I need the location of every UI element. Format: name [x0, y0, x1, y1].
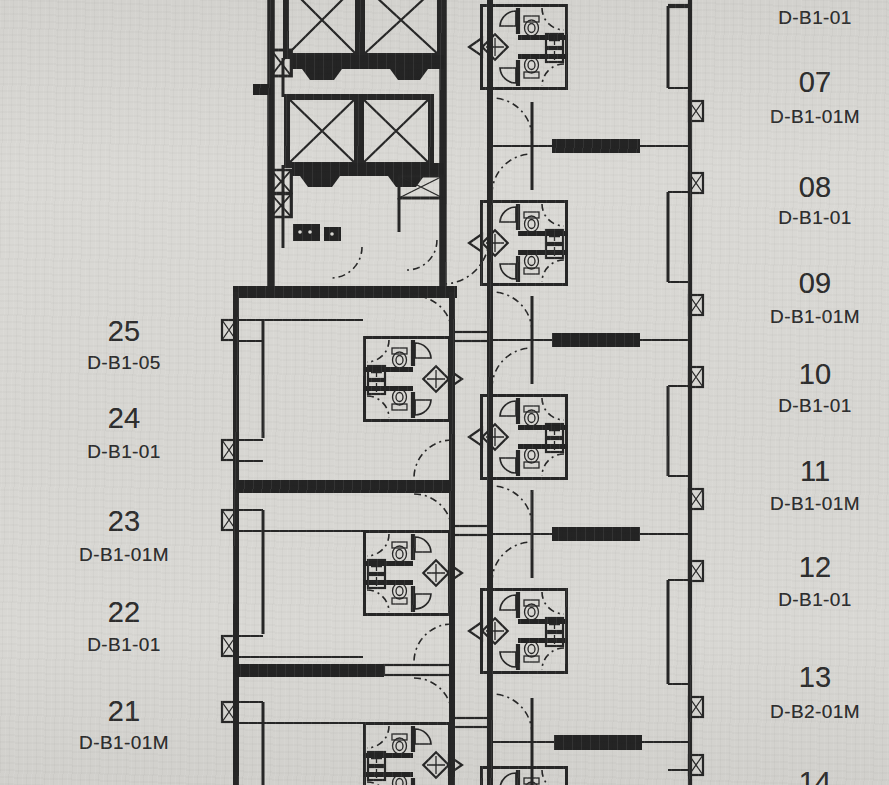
- door-arc: [414, 624, 452, 662]
- door-arc: [492, 486, 532, 526]
- wall: [292, 163, 444, 176]
- structural-wall: [554, 735, 642, 750]
- unit-type-label: D-B2-01M: [730, 702, 889, 722]
- elevator-shaft-icon: [287, 97, 431, 165]
- right-wing: [469, 0, 703, 785]
- door-arc: [492, 98, 532, 138]
- structural-wall: [236, 480, 452, 493]
- bathroom-cluster: [469, 202, 568, 285]
- unit-number: 10: [730, 359, 889, 389]
- unit-number: 08: [730, 172, 889, 202]
- wall: [292, 55, 444, 69]
- wall: [233, 286, 457, 298]
- wall: [452, 526, 490, 535]
- unit-number: 21: [39, 696, 209, 726]
- unit-number: 25: [39, 316, 209, 346]
- unit-number: 23: [39, 506, 209, 536]
- unit-type-label: D-B1-01: [730, 8, 889, 28]
- bathroom-cluster: [469, 396, 568, 479]
- unit-type-label: D-B1-01: [730, 208, 889, 228]
- elevator-door: [390, 69, 428, 80]
- wall: [384, 665, 452, 675]
- bathroom-cluster: [363, 338, 462, 421]
- unit-type-label: D-B1-01M: [730, 494, 889, 514]
- left-wing: [222, 292, 490, 785]
- door-arc: [492, 542, 532, 582]
- unit-type-label: D-B1-05: [39, 353, 209, 373]
- bathroom-cluster: [469, 6, 568, 89]
- core: [233, 0, 489, 298]
- structural-wall: [552, 527, 640, 541]
- unit-type-label: D-B1-01: [730, 590, 889, 610]
- door-arc: [492, 154, 532, 194]
- wall: [452, 332, 490, 341]
- door-arc: [331, 247, 362, 278]
- unit-number: 09: [730, 268, 889, 298]
- unit-number: 22: [39, 597, 209, 627]
- unit-type-label: D-B1-01M: [730, 307, 889, 327]
- bathroom-cluster: [469, 768, 568, 785]
- elevator-door: [300, 176, 340, 187]
- unit-number: 11: [730, 456, 889, 486]
- wall: [253, 84, 271, 95]
- unit-type-label: D-B1-01M: [39, 545, 209, 565]
- kitchen-counter: [293, 224, 341, 241]
- unit-type-label: D-B1-01: [39, 442, 209, 462]
- unit-number: 07: [730, 67, 889, 97]
- door-arc: [492, 694, 532, 734]
- door-arc: [414, 494, 452, 532]
- door-arc: [414, 678, 452, 716]
- highlighted-unit-overlay: [248, 744, 558, 785]
- door-arc: [414, 296, 452, 334]
- unit-number: 24: [39, 403, 209, 433]
- bathroom-cluster: [469, 590, 568, 673]
- wall: [238, 320, 363, 723]
- unit-type-label: D-B1-01: [39, 635, 209, 655]
- unit-type-label: D-B1-01M: [39, 733, 209, 753]
- bathroom-cluster: [363, 532, 462, 615]
- structural-wall: [552, 139, 640, 153]
- structural-wall: [236, 664, 384, 677]
- unit-number: 12: [730, 552, 889, 582]
- door-arc: [492, 292, 532, 332]
- elevator-door: [302, 69, 342, 80]
- structural-wall: [552, 333, 640, 347]
- unit-number: 13: [730, 662, 889, 692]
- elevator-shaft-icon: [286, 0, 440, 56]
- door-arc: [407, 240, 437, 270]
- door-arc: [492, 348, 532, 388]
- scanned-floor-plan-page: { "palette": { "paper": "#d7d6d2", "ink"…: [0, 0, 889, 785]
- wall: [452, 718, 490, 727]
- bathroom-cluster: [363, 724, 462, 785]
- unit-type-label: D-B1-01M: [730, 107, 889, 127]
- unit-type-label: D-B1-01: [730, 396, 889, 416]
- door-arc: [414, 440, 452, 478]
- unit-number: 14: [730, 767, 889, 785]
